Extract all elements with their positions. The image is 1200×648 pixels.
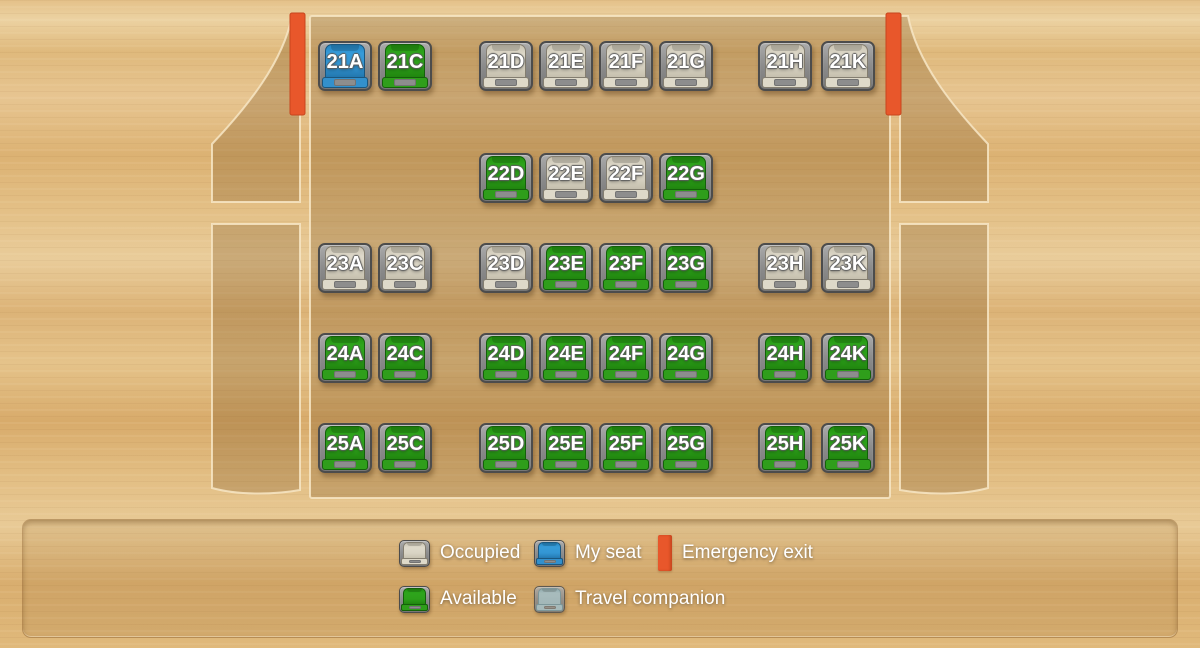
seat-25C[interactable]: 25C [378, 423, 432, 473]
seat-21C[interactable]: 21C [378, 41, 432, 91]
seat-25G[interactable]: 25G [659, 423, 713, 473]
travel-companion-seat-icon [534, 586, 565, 613]
seat-21H: 21H [758, 41, 812, 91]
legend-item-emergency-exit: Emergency exit [658, 535, 813, 571]
seat-23C: 23C [378, 243, 432, 293]
seat-label: 23F [601, 245, 651, 283]
seat-selection-screen: 21A21C21D21E21F21G21H21K22D22E22F22G23A2… [0, 0, 1200, 648]
seat-24F[interactable]: 24F [599, 333, 653, 383]
legend-item-my-seat: My seat [534, 535, 642, 571]
seat-25F[interactable]: 25F [599, 423, 653, 473]
seat-back [538, 588, 561, 606]
seat-23F[interactable]: 23F [599, 243, 653, 293]
seat-belt [544, 606, 556, 609]
seat-label: 21A [320, 43, 370, 81]
seat-label: 24H [760, 335, 810, 373]
seat-25E[interactable]: 25E [539, 423, 593, 473]
seat-23D: 23D [479, 243, 533, 293]
legend-item-occupied: Occupied [399, 535, 520, 571]
seat-21E: 21E [539, 41, 593, 91]
seat-24G[interactable]: 24G [659, 333, 713, 383]
seat-25H[interactable]: 25H [758, 423, 812, 473]
seat-24C[interactable]: 24C [378, 333, 432, 383]
seat-label: 23D [481, 245, 531, 283]
seat-23H: 23H [758, 243, 812, 293]
seat-label: 21H [760, 43, 810, 81]
seat-21G: 21G [659, 41, 713, 91]
seat-label: 23K [823, 245, 873, 283]
seat-cushion [536, 604, 563, 611]
seat-label: 22F [601, 155, 651, 193]
seat-label: 22D [481, 155, 531, 193]
seat-back [403, 542, 426, 560]
seat-23E[interactable]: 23E [539, 243, 593, 293]
seat-label: 21F [601, 43, 651, 81]
seat-label: 21E [541, 43, 591, 81]
seat-22D[interactable]: 22D [479, 153, 533, 203]
seat-cushion [401, 558, 428, 565]
seat-belt [409, 606, 421, 609]
legend-label-occupied: Occupied [440, 542, 520, 564]
seat-25A[interactable]: 25A [318, 423, 372, 473]
seat-label: 25C [380, 425, 430, 463]
legend-label-emergency-exit: Emergency exit [682, 542, 813, 564]
seat-cushion [401, 604, 428, 611]
seat-label: 21K [823, 43, 873, 81]
seat-belt [409, 560, 421, 563]
my-seat-icon [534, 540, 565, 567]
seat-back [538, 542, 561, 560]
seat-21A[interactable]: 21A [318, 41, 372, 91]
legend-item-available: Available [399, 581, 517, 617]
occupied-seat-icon [399, 540, 430, 567]
seat-22F: 22F [599, 153, 653, 203]
seat-21K: 21K [821, 41, 875, 91]
seat-25D[interactable]: 25D [479, 423, 533, 473]
seat-label: 23C [380, 245, 430, 283]
seat-label: 21D [481, 43, 531, 81]
seat-label: 25A [320, 425, 370, 463]
seat-label: 24K [823, 335, 873, 373]
seat-24E[interactable]: 24E [539, 333, 593, 383]
seat-label: 24F [601, 335, 651, 373]
seat-label: 21C [380, 43, 430, 81]
seat-cushion [536, 558, 563, 565]
seat-label: 22E [541, 155, 591, 193]
seat-label: 24G [661, 335, 711, 373]
seat-back [403, 588, 426, 606]
seat-label: 25D [481, 425, 531, 463]
legend-label-travel-companion: Travel companion [575, 588, 725, 610]
seat-24D[interactable]: 24D [479, 333, 533, 383]
seat-23K: 23K [821, 243, 875, 293]
seat-label: 22G [661, 155, 711, 193]
seat-label: 25K [823, 425, 873, 463]
seat-21F: 21F [599, 41, 653, 91]
seat-21D: 21D [479, 41, 533, 91]
legend-item-travel-companion: Travel companion [534, 581, 725, 617]
seat-label: 25G [661, 425, 711, 463]
seat-24A[interactable]: 24A [318, 333, 372, 383]
seat-label: 24E [541, 335, 591, 373]
seat-label: 21G [661, 43, 711, 81]
seat-label: 23G [661, 245, 711, 283]
seat-label: 25H [760, 425, 810, 463]
seat-23G[interactable]: 23G [659, 243, 713, 293]
seat-label: 25E [541, 425, 591, 463]
seat-label: 23A [320, 245, 370, 283]
seat-belt [544, 560, 556, 563]
seat-23A: 23A [318, 243, 372, 293]
seat-24K[interactable]: 24K [821, 333, 875, 383]
seat-label: 24C [380, 335, 430, 373]
seat-label: 24A [320, 335, 370, 373]
legend-label-available: Available [440, 588, 517, 610]
seat-22G[interactable]: 22G [659, 153, 713, 203]
seat-label: 23E [541, 245, 591, 283]
seat-label: 23H [760, 245, 810, 283]
seat-22E: 22E [539, 153, 593, 203]
seat-label: 24D [481, 335, 531, 373]
seat-24H[interactable]: 24H [758, 333, 812, 383]
emergency-exit-icon [658, 535, 672, 571]
legend-label-my-seat: My seat [575, 542, 642, 564]
seat-25K[interactable]: 25K [821, 423, 875, 473]
seat-label: 25F [601, 425, 651, 463]
available-seat-icon [399, 586, 430, 613]
